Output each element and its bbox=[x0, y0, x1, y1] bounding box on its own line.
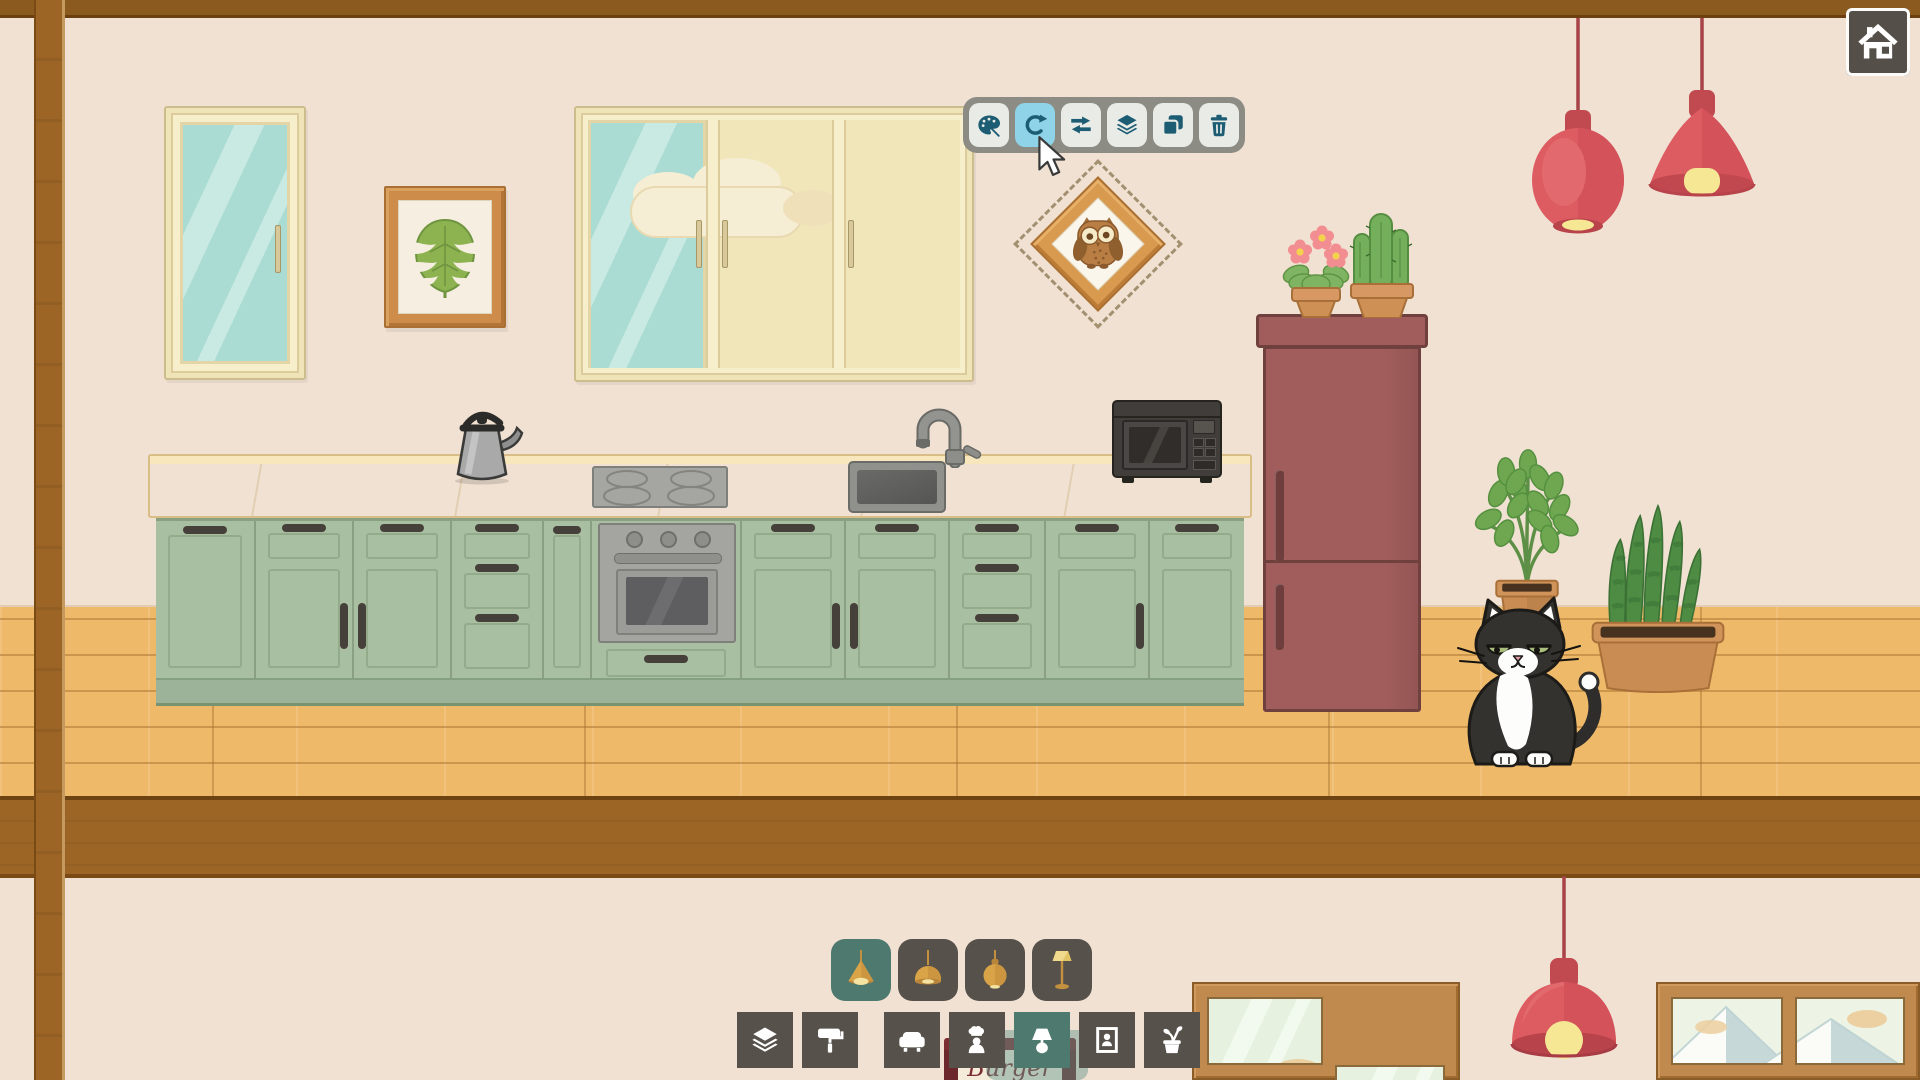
layers-icon bbox=[749, 1024, 781, 1056]
selection-toolbar bbox=[963, 97, 1245, 153]
faucet[interactable] bbox=[905, 406, 990, 468]
refrigerator-handle bbox=[1275, 470, 1284, 562]
oven[interactable] bbox=[592, 521, 742, 678]
cat[interactable] bbox=[1448, 596, 1608, 771]
duplicate-icon bbox=[1160, 112, 1186, 138]
microwave-foot bbox=[1200, 476, 1212, 483]
potted-plant-icon bbox=[1156, 1024, 1188, 1056]
cabinet-panel bbox=[1150, 521, 1244, 678]
refrigerator-seam bbox=[1266, 560, 1418, 563]
chef-icon bbox=[961, 1024, 993, 1056]
home-icon bbox=[1856, 20, 1900, 64]
table-lamp-icon bbox=[1026, 1024, 1058, 1056]
cabinet-drawer-door bbox=[1046, 521, 1150, 678]
lower-window-left[interactable] bbox=[1192, 982, 1460, 1080]
window-mullion bbox=[706, 120, 720, 368]
tray-item-pendant-lamp-orb[interactable] bbox=[965, 939, 1025, 1001]
window-pane bbox=[1207, 997, 1323, 1065]
microwave-window bbox=[1129, 427, 1181, 463]
toolbar-button-duplicate[interactable] bbox=[1153, 103, 1193, 147]
window-glass-area bbox=[588, 120, 960, 368]
pane-border bbox=[1671, 997, 1783, 1065]
layers-icon bbox=[1114, 112, 1140, 138]
kitchen-window-large[interactable] bbox=[574, 106, 974, 382]
couch-icon bbox=[896, 1024, 928, 1056]
owl-icon bbox=[1071, 215, 1125, 273]
picture-mat bbox=[398, 200, 492, 314]
item-tray bbox=[831, 939, 1092, 1001]
category-characters[interactable] bbox=[949, 1012, 1005, 1068]
cabinet-drawers bbox=[950, 521, 1046, 678]
kitchen-window-small[interactable] bbox=[164, 106, 306, 380]
home-button[interactable] bbox=[1846, 8, 1910, 76]
tray-item-pendant-lamp-cone[interactable] bbox=[831, 939, 891, 1001]
window-mullion bbox=[832, 120, 846, 368]
category-lighting[interactable] bbox=[1014, 1012, 1070, 1068]
toolbar-button-layers[interactable] bbox=[1107, 103, 1147, 147]
cabinet-narrow-door bbox=[544, 521, 592, 678]
cabinet-drawer-door bbox=[742, 521, 846, 678]
window-handle bbox=[848, 220, 854, 268]
cactus-plant[interactable] bbox=[1346, 208, 1418, 318]
cabinet-drawer-door bbox=[354, 521, 452, 678]
category-plants[interactable] bbox=[1144, 1012, 1200, 1068]
mouse-cursor bbox=[1038, 136, 1068, 178]
window-handle bbox=[696, 220, 702, 268]
floor-divider-beam bbox=[0, 796, 1920, 878]
sink-inner bbox=[857, 470, 937, 504]
window-handle bbox=[275, 225, 281, 273]
cooktop[interactable] bbox=[592, 466, 728, 508]
rotate-icon bbox=[1022, 112, 1048, 138]
tray-item-pendant-lamp-dome[interactable] bbox=[898, 939, 958, 1001]
category-wallpaper[interactable] bbox=[802, 1012, 858, 1068]
pendant-lamp-cone[interactable] bbox=[1628, 12, 1778, 204]
category-bar bbox=[737, 1012, 1200, 1068]
toolbar-button-paint[interactable] bbox=[969, 103, 1009, 147]
floor-lamp-icon bbox=[1042, 948, 1082, 992]
cabinet-drawer-door bbox=[846, 521, 950, 678]
framed-picture-icon bbox=[1091, 1024, 1123, 1056]
cabinet-drawers bbox=[452, 521, 544, 678]
cloud bbox=[1275, 1059, 1321, 1065]
microwave-door bbox=[1122, 420, 1188, 470]
burners bbox=[594, 468, 726, 506]
monstera-picture[interactable] bbox=[384, 186, 506, 328]
trash-icon bbox=[1206, 112, 1232, 138]
sink[interactable] bbox=[848, 461, 946, 513]
window-mullion bbox=[1323, 997, 1335, 1065]
toolbar-button-delete[interactable] bbox=[1199, 103, 1239, 147]
cabinet-kick-plate bbox=[156, 678, 1244, 706]
window-pane bbox=[1335, 1065, 1445, 1080]
refrigerator[interactable] bbox=[1263, 346, 1421, 712]
room-editor: Burger bbox=[0, 0, 1920, 1080]
microwave-seam bbox=[1114, 416, 1220, 418]
category-wall-decor[interactable] bbox=[1079, 1012, 1135, 1068]
monstera-leaf-icon bbox=[410, 214, 480, 300]
window-glass bbox=[180, 122, 290, 364]
ceiling-beam bbox=[0, 0, 1920, 18]
pendant-lamp-cone-icon bbox=[841, 948, 881, 992]
kettle[interactable] bbox=[436, 406, 536, 486]
kitchen-cabinets[interactable] bbox=[156, 518, 1244, 678]
category-furniture[interactable] bbox=[884, 1012, 940, 1068]
window-handle bbox=[722, 220, 728, 268]
palette-icon bbox=[976, 112, 1002, 138]
category-layers[interactable] bbox=[737, 1012, 793, 1068]
snake-plant[interactable] bbox=[1588, 490, 1728, 698]
left-wall-beam bbox=[34, 0, 65, 1080]
pendant-lamp-round[interactable] bbox=[1520, 12, 1640, 234]
refrigerator-top bbox=[1256, 314, 1428, 348]
pendant-lamp-orb-icon bbox=[975, 948, 1015, 992]
lower-window-right[interactable] bbox=[1656, 982, 1920, 1080]
red-pendant-lamp[interactable] bbox=[1500, 876, 1628, 1076]
paint-roller-icon bbox=[814, 1024, 846, 1056]
cabinet-door bbox=[156, 521, 256, 678]
picture-mat bbox=[1051, 197, 1144, 290]
window-mullion bbox=[1783, 997, 1795, 1065]
flip-arrows-icon bbox=[1068, 112, 1094, 138]
microwave-foot bbox=[1122, 476, 1134, 483]
refrigerator-handle bbox=[1275, 584, 1284, 650]
cabinet-drawer-door bbox=[256, 521, 354, 678]
microwave-panel bbox=[1193, 420, 1215, 470]
window-pane bbox=[588, 120, 706, 368]
pane-border bbox=[1795, 997, 1905, 1065]
microwave[interactable] bbox=[1112, 400, 1222, 478]
tray-item-floor-lamp[interactable] bbox=[1032, 939, 1092, 1001]
pendant-lamp-dome-icon bbox=[908, 948, 948, 992]
